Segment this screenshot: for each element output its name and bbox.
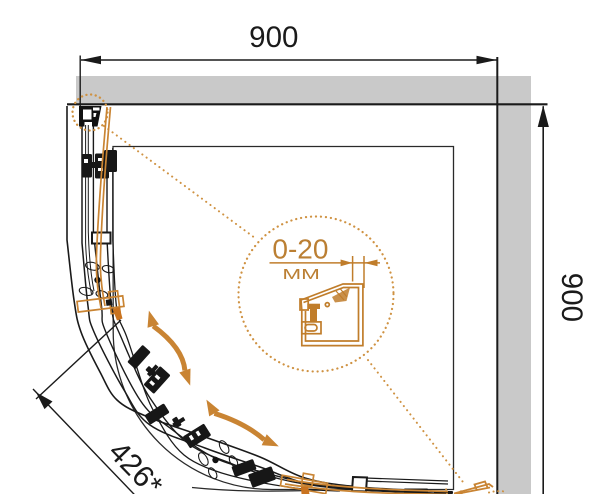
svg-text:900: 900 [249, 21, 298, 54]
svg-text:0-20: 0-20 [272, 234, 328, 265]
svg-text:900: 900 [555, 273, 588, 322]
svg-text:ММ: ММ [282, 266, 320, 283]
